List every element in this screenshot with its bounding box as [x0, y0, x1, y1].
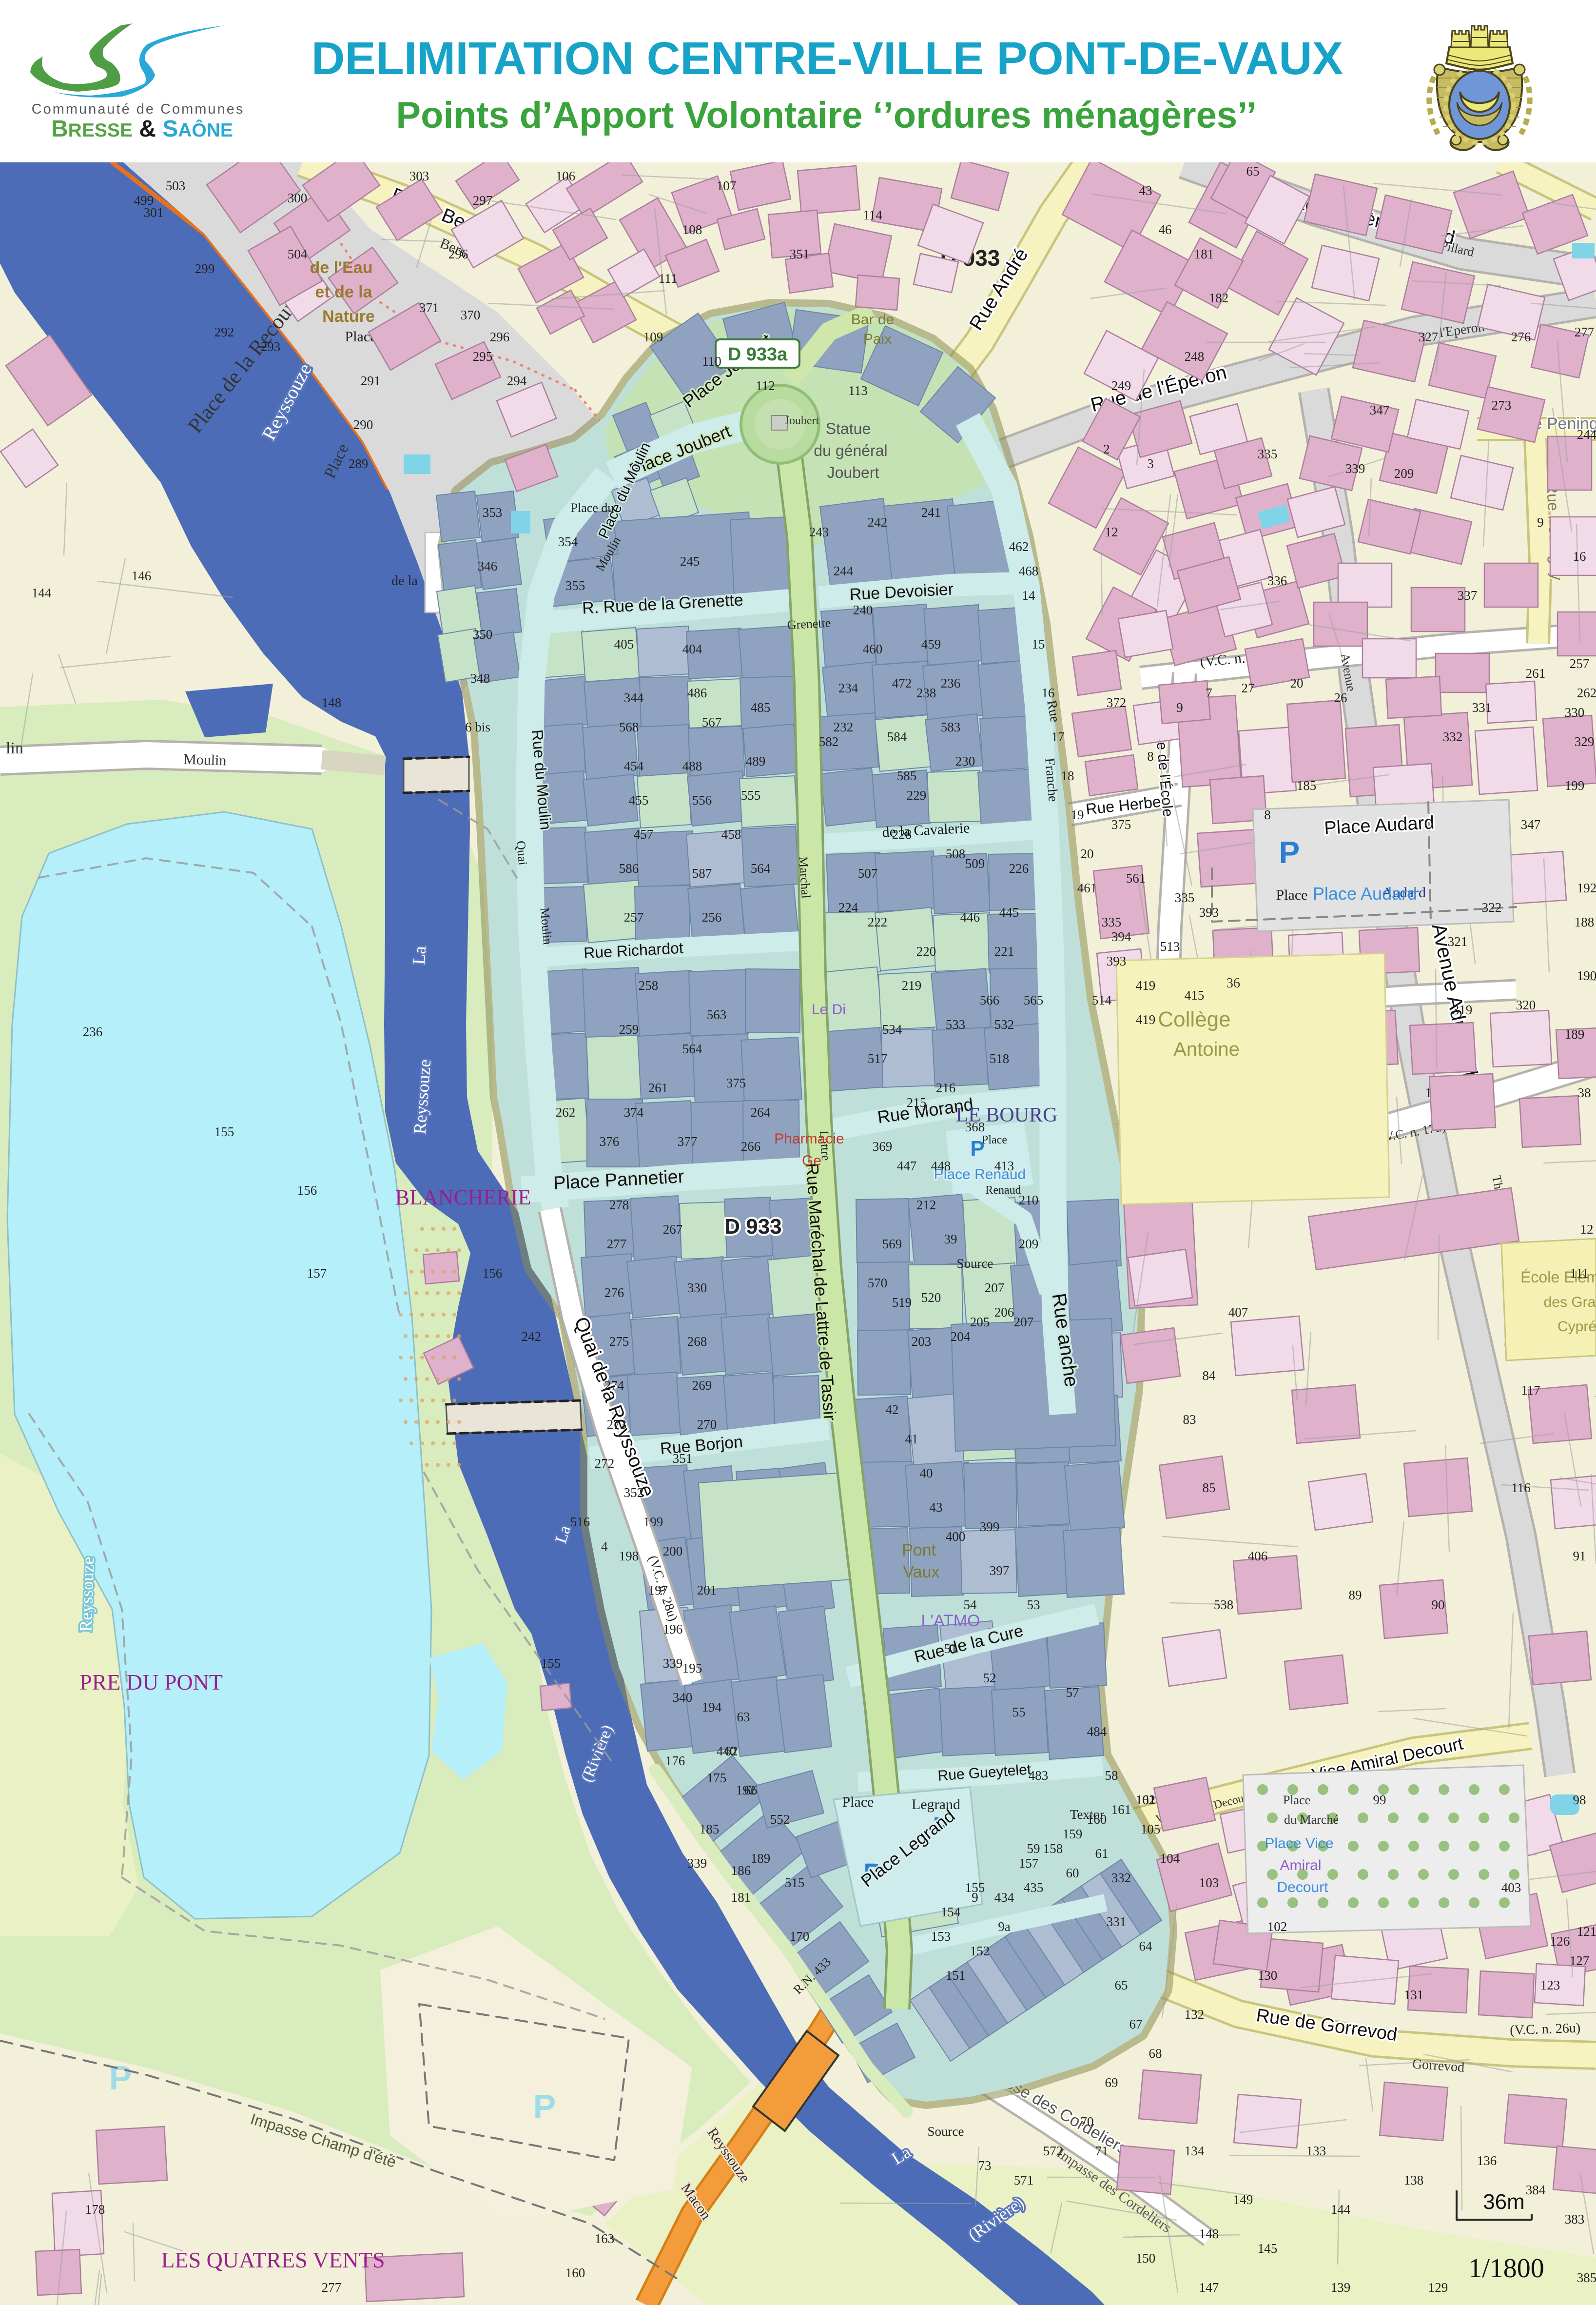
svg-text:397: 397: [990, 1563, 1010, 1578]
svg-text:104: 104: [1160, 1851, 1180, 1866]
svg-text:85: 85: [1203, 1480, 1216, 1495]
svg-text:587: 587: [692, 866, 712, 881]
svg-text:462: 462: [1009, 539, 1029, 554]
svg-text:454: 454: [624, 759, 644, 773]
svg-text:61: 61: [1095, 1846, 1109, 1861]
svg-text:348: 348: [470, 671, 490, 686]
svg-text:563: 563: [707, 1007, 727, 1022]
svg-text:106: 106: [556, 169, 576, 183]
svg-text:55: 55: [1012, 1705, 1026, 1719]
svg-text:221: 221: [994, 944, 1014, 959]
svg-text:513: 513: [1160, 939, 1180, 954]
svg-text:337: 337: [1458, 588, 1478, 603]
svg-text:123: 123: [1540, 1978, 1560, 1992]
svg-text:178: 178: [85, 2202, 105, 2217]
svg-text:413: 413: [994, 1159, 1014, 1173]
svg-text:du général: du général: [814, 442, 887, 459]
svg-text:564: 564: [682, 1042, 702, 1056]
svg-text:259: 259: [619, 1022, 639, 1037]
svg-text:170: 170: [790, 1929, 810, 1944]
svg-text:147: 147: [1199, 2280, 1219, 2295]
svg-text:42: 42: [886, 1402, 899, 1417]
svg-text:PRE DU PONT: PRE DU PONT: [79, 1670, 223, 1694]
svg-text:Nature: Nature: [322, 307, 375, 326]
svg-text:Place: Place: [842, 1794, 874, 1810]
svg-text:332: 332: [1111, 1871, 1131, 1885]
svg-text:54: 54: [964, 1597, 977, 1612]
svg-text:274: 274: [604, 1378, 624, 1393]
svg-text:406: 406: [1248, 1549, 1268, 1563]
svg-text:1/1800: 1/1800: [1468, 2253, 1544, 2284]
svg-text:347: 347: [1370, 403, 1390, 417]
svg-text:Collège: Collège: [1158, 1007, 1230, 1031]
svg-text:585: 585: [897, 768, 917, 783]
svg-text:Pont: Pont: [902, 1541, 936, 1559]
svg-text:468: 468: [1019, 564, 1039, 578]
svg-text:51: 51: [944, 1641, 957, 1656]
svg-text:520: 520: [921, 1290, 941, 1305]
svg-text:190: 190: [1577, 968, 1596, 983]
svg-text:157: 157: [307, 1266, 327, 1281]
svg-text:419: 419: [1136, 978, 1156, 993]
svg-text:19: 19: [1071, 808, 1084, 822]
svg-text:102: 102: [1267, 1919, 1287, 1934]
svg-text:113: 113: [848, 383, 868, 398]
svg-text:103: 103: [1199, 1875, 1219, 1890]
svg-text:64: 64: [1139, 1939, 1153, 1953]
svg-text:319: 319: [1453, 1003, 1473, 1017]
svg-text:352: 352: [624, 1485, 644, 1500]
svg-text:569: 569: [882, 1237, 902, 1251]
svg-text:572: 572: [1043, 2144, 1063, 2158]
svg-text:394: 394: [1111, 929, 1131, 944]
svg-text:139: 139: [1331, 2280, 1351, 2295]
svg-text:533: 533: [946, 1017, 966, 1032]
svg-text:3: 3: [1147, 456, 1154, 471]
svg-text:Bar de: Bar de: [851, 312, 894, 328]
svg-text:Points d’Apport Volontaire ‘’o: Points d’Apport Volontaire ‘’ordures mén…: [396, 95, 1256, 136]
svg-text:144: 144: [32, 586, 52, 600]
svg-text:393: 393: [1199, 905, 1219, 920]
svg-text:236: 236: [83, 1024, 103, 1039]
svg-text:197: 197: [648, 1583, 668, 1597]
svg-text:LES QUATRES VENTS: LES QUATRES VENTS: [161, 2247, 385, 2272]
svg-text:508: 508: [946, 847, 966, 861]
svg-text:276: 276: [1511, 330, 1531, 344]
svg-text:461: 461: [1077, 881, 1097, 895]
svg-text:90: 90: [1432, 1597, 1445, 1612]
svg-text:109: 109: [643, 330, 663, 344]
svg-text:60: 60: [1066, 1866, 1079, 1880]
svg-text:370: 370: [461, 308, 481, 322]
svg-text:355: 355: [565, 578, 585, 593]
svg-text:377: 377: [678, 1134, 698, 1149]
svg-text:503: 503: [166, 178, 186, 193]
svg-text:372: 372: [1107, 695, 1127, 710]
svg-text:228: 228: [892, 827, 912, 842]
svg-text:244: 244: [1577, 427, 1596, 442]
svg-text:196: 196: [663, 1622, 683, 1636]
svg-text:330: 330: [687, 1281, 707, 1295]
svg-text:Place: Place: [1276, 887, 1308, 903]
svg-text:242: 242: [868, 515, 888, 530]
svg-text:Place: Place: [982, 1134, 1007, 1146]
svg-text:375: 375: [726, 1076, 746, 1090]
svg-text:9a: 9a: [998, 1919, 1011, 1934]
svg-text:243: 243: [809, 525, 829, 539]
svg-text:445: 445: [999, 905, 1019, 920]
svg-text:400: 400: [946, 1529, 966, 1544]
svg-text:384: 384: [1526, 2183, 1546, 2197]
svg-text:224: 224: [838, 900, 858, 915]
svg-text:570: 570: [868, 1276, 888, 1290]
svg-text:148: 148: [1199, 2226, 1219, 2241]
svg-text:457: 457: [634, 827, 654, 842]
svg-text:7: 7: [1206, 686, 1212, 700]
svg-text:155: 155: [214, 1124, 234, 1139]
svg-text:267: 267: [663, 1222, 683, 1237]
svg-text:68: 68: [1149, 2046, 1162, 2061]
svg-text:12: 12: [1105, 525, 1118, 539]
svg-text:73: 73: [978, 2158, 992, 2173]
svg-text:207: 207: [1014, 1315, 1034, 1329]
svg-text:299: 299: [195, 261, 215, 276]
svg-text:582: 582: [819, 734, 839, 749]
svg-text:201: 201: [697, 1583, 717, 1597]
svg-text:P: P: [533, 2088, 556, 2126]
svg-text:52: 52: [983, 1671, 996, 1685]
svg-text:277: 277: [607, 1237, 627, 1251]
svg-text:38: 38: [1578, 1085, 1591, 1100]
svg-text:129: 129: [1428, 2280, 1448, 2295]
svg-text:P: P: [109, 2059, 132, 2097]
svg-text:20: 20: [1081, 847, 1094, 861]
svg-text:203: 203: [912, 1334, 932, 1349]
svg-text:Paix: Paix: [863, 331, 892, 347]
svg-text:532: 532: [994, 1017, 1014, 1032]
svg-text:483: 483: [1029, 1768, 1049, 1783]
svg-text:175: 175: [707, 1771, 727, 1785]
svg-text:210: 210: [1019, 1193, 1039, 1207]
svg-text:4: 4: [601, 1539, 608, 1554]
svg-text:18: 18: [1061, 768, 1074, 783]
svg-text:584: 584: [887, 729, 907, 744]
svg-text:517: 517: [868, 1051, 888, 1066]
svg-text:266: 266: [741, 1139, 761, 1154]
svg-text:186: 186: [731, 1863, 751, 1878]
svg-text:91: 91: [1573, 1549, 1586, 1563]
svg-text:43: 43: [1139, 183, 1152, 198]
svg-text:236: 236: [941, 676, 961, 690]
svg-text:150: 150: [1136, 2251, 1156, 2266]
svg-text:459: 459: [921, 637, 941, 651]
svg-text:Le Di: Le Di: [812, 1002, 846, 1018]
svg-text:257: 257: [1570, 656, 1590, 671]
svg-text:296: 296: [490, 330, 510, 344]
svg-text:99: 99: [1373, 1793, 1386, 1807]
svg-text:516: 516: [570, 1515, 590, 1529]
svg-text:157: 157: [1019, 1856, 1039, 1871]
svg-text:371: 371: [419, 300, 439, 315]
svg-text:et de la: et de la: [315, 283, 372, 301]
svg-text:12: 12: [1580, 1222, 1594, 1237]
svg-text:455: 455: [629, 793, 649, 808]
svg-text:105: 105: [1141, 1822, 1161, 1836]
svg-text:256: 256: [702, 910, 722, 925]
svg-text:Grenette: Grenette: [787, 616, 831, 632]
svg-text:181: 181: [731, 1890, 751, 1905]
svg-text:de l'Eau: de l'Eau: [310, 258, 372, 277]
svg-text:519: 519: [892, 1295, 912, 1310]
svg-text:374: 374: [624, 1105, 644, 1120]
svg-text:57: 57: [1066, 1685, 1079, 1700]
svg-text:240: 240: [853, 603, 873, 617]
svg-text:133: 133: [1306, 2144, 1326, 2158]
svg-text:292: 292: [214, 325, 234, 339]
svg-text:273: 273: [607, 1417, 627, 1432]
svg-text:de la: de la: [391, 573, 418, 589]
svg-text:8: 8: [1264, 808, 1271, 822]
svg-text:322: 322: [1482, 900, 1502, 915]
svg-text:16: 16: [1042, 686, 1055, 700]
svg-text:403: 403: [1501, 1880, 1521, 1895]
svg-text:291: 291: [361, 374, 381, 388]
svg-text:507: 507: [858, 866, 878, 881]
svg-text:Vaux: Vaux: [903, 1563, 940, 1581]
svg-text:156: 156: [297, 1183, 317, 1198]
svg-text:335: 335: [1175, 890, 1195, 905]
svg-text:116: 116: [1511, 1480, 1531, 1495]
svg-text:Renaud: Renaud: [985, 1184, 1021, 1197]
svg-text:41: 41: [905, 1432, 918, 1446]
svg-text:383: 383: [1565, 2212, 1585, 2226]
svg-text:270: 270: [697, 1417, 717, 1432]
svg-text:275: 275: [609, 1334, 629, 1349]
svg-text:163: 163: [595, 2231, 615, 2246]
svg-text:534: 534: [882, 1022, 902, 1037]
svg-text:301: 301: [144, 205, 164, 220]
svg-text:117: 117: [1521, 1383, 1540, 1398]
svg-text:199: 199: [643, 1515, 663, 1529]
svg-text:Communauté de Communes: Communauté de Communes: [32, 101, 245, 117]
svg-text:552: 552: [770, 1812, 790, 1827]
svg-text:277: 277: [1575, 325, 1595, 339]
svg-text:209: 209: [1019, 1237, 1039, 1251]
svg-text:399: 399: [980, 1519, 1000, 1534]
svg-text:262: 262: [556, 1105, 576, 1120]
svg-text:Place: Place: [1283, 1793, 1310, 1807]
svg-text:162: 162: [1136, 1793, 1156, 1807]
svg-text:332: 332: [1443, 729, 1463, 744]
svg-text:130: 130: [1258, 1968, 1278, 1983]
svg-text:D 933a: D 933a: [728, 344, 788, 365]
svg-text:199: 199: [1565, 778, 1585, 793]
svg-text:36m: 36m: [1483, 2190, 1525, 2214]
svg-text:98: 98: [1573, 1793, 1586, 1807]
svg-text:17: 17: [1051, 729, 1065, 744]
svg-text:321: 321: [1448, 934, 1468, 949]
svg-text:189: 189: [1565, 1027, 1585, 1042]
svg-text:350: 350: [473, 627, 493, 642]
svg-text:194: 194: [702, 1700, 722, 1714]
svg-text:185: 185: [700, 1822, 720, 1836]
svg-text:368: 368: [965, 1120, 985, 1134]
svg-text:155: 155: [541, 1656, 561, 1671]
svg-text:Place du: Place du: [571, 501, 614, 515]
svg-text:des Gra: des Gra: [1544, 1294, 1596, 1310]
svg-text:460: 460: [863, 642, 883, 656]
svg-text:111: 111: [659, 271, 678, 286]
svg-text:262: 262: [1577, 686, 1596, 700]
svg-text:Moulin: Moulin: [183, 751, 227, 768]
svg-text:327: 327: [1419, 330, 1439, 344]
svg-text:8: 8: [1147, 749, 1154, 764]
svg-text:485: 485: [751, 700, 771, 715]
svg-text:216: 216: [936, 1081, 956, 1095]
svg-text:489: 489: [746, 754, 766, 768]
svg-text:127: 127: [1570, 1953, 1590, 1968]
svg-text:185: 185: [1297, 778, 1317, 793]
svg-text:204: 204: [951, 1329, 971, 1344]
svg-text:583: 583: [941, 720, 961, 734]
svg-text:376: 376: [600, 1134, 620, 1149]
svg-text:447: 447: [897, 1159, 917, 1173]
svg-text:146: 146: [132, 569, 152, 583]
svg-text:555: 555: [741, 788, 761, 803]
svg-text:568: 568: [619, 720, 639, 734]
svg-text:404: 404: [682, 642, 702, 656]
svg-text:Decourt: Decourt: [1277, 1879, 1328, 1895]
svg-text:340: 340: [673, 1690, 693, 1705]
svg-text:195: 195: [682, 1661, 702, 1675]
svg-text:561: 561: [1126, 871, 1146, 886]
svg-text:586: 586: [619, 861, 639, 876]
svg-text:353: 353: [483, 505, 503, 520]
svg-text:393: 393: [1107, 954, 1127, 968]
svg-text:230: 230: [955, 754, 975, 768]
svg-text:Pharmacie: Pharmacie: [774, 1131, 844, 1147]
svg-text:Place Vice: Place Vice: [1265, 1835, 1333, 1852]
svg-text:144: 144: [1331, 2202, 1351, 2217]
svg-text:212: 212: [916, 1198, 936, 1212]
svg-text:278: 278: [609, 1198, 629, 1212]
svg-text:207: 207: [985, 1281, 1005, 1295]
svg-text:155: 155: [965, 1880, 985, 1895]
svg-text:448: 448: [931, 1159, 951, 1173]
svg-text:Marchal: Marchal: [796, 856, 813, 899]
svg-text:273: 273: [1492, 398, 1512, 413]
svg-text:108: 108: [682, 222, 702, 237]
svg-text:331: 331: [1107, 1914, 1127, 1929]
svg-text:339: 339: [663, 1656, 683, 1671]
svg-text:156: 156: [483, 1266, 503, 1281]
svg-text:Legrand: Legrand: [912, 1796, 960, 1812]
svg-text:La: La: [409, 946, 430, 965]
svg-text:272: 272: [595, 1456, 615, 1471]
svg-text:15: 15: [1032, 637, 1045, 651]
svg-text:132: 132: [1185, 2007, 1205, 2022]
svg-text:Statue: Statue: [826, 420, 871, 437]
svg-text:181: 181: [1194, 247, 1214, 261]
svg-text:D 933: D 933: [724, 1215, 781, 1239]
svg-text:P: P: [1279, 835, 1300, 870]
svg-text:Ge: Ge: [802, 1153, 821, 1169]
svg-text:111: 111: [1570, 1266, 1589, 1281]
svg-text:226: 226: [1009, 861, 1029, 876]
svg-text:20: 20: [1290, 676, 1304, 690]
svg-text:58: 58: [1105, 1768, 1118, 1783]
svg-text:514: 514: [1092, 993, 1112, 1007]
svg-text:244: 244: [834, 564, 854, 578]
svg-text:145: 145: [1258, 2241, 1278, 2256]
svg-text:36: 36: [1226, 976, 1240, 991]
svg-text:241: 241: [921, 505, 941, 520]
svg-text:329: 329: [1575, 734, 1595, 749]
svg-text:293: 293: [261, 339, 281, 354]
svg-text:BLANCHERIE: BLANCHERIE: [395, 1185, 531, 1209]
svg-text:434: 434: [994, 1890, 1014, 1905]
svg-text:488: 488: [682, 759, 702, 773]
svg-text:564: 564: [751, 861, 771, 876]
svg-text:515: 515: [785, 1875, 805, 1890]
svg-text:385: 385: [1577, 2270, 1596, 2285]
svg-text:264: 264: [751, 1105, 771, 1120]
svg-text:458: 458: [721, 827, 741, 842]
svg-text:BRESSE & SAÔNE: BRESSE & SAÔNE: [51, 116, 233, 142]
svg-text:320: 320: [1516, 998, 1536, 1012]
svg-text:261: 261: [648, 1081, 668, 1095]
svg-text:70: 70: [1081, 2114, 1094, 2129]
svg-text:151: 151: [946, 1968, 966, 1983]
svg-text:206: 206: [994, 1305, 1014, 1320]
svg-text:369: 369: [873, 1139, 893, 1154]
svg-text:Source: Source: [957, 1256, 993, 1271]
svg-text:415: 415: [1185, 988, 1205, 1003]
svg-text:209: 209: [1394, 466, 1414, 481]
svg-text:67: 67: [1129, 2017, 1143, 2031]
svg-text:121: 121: [1577, 1924, 1596, 1939]
svg-text:268: 268: [687, 1334, 707, 1349]
svg-text:215: 215: [907, 1095, 927, 1110]
svg-text:160: 160: [565, 2266, 585, 2280]
svg-text:149: 149: [1233, 2192, 1253, 2207]
svg-text:159: 159: [1063, 1827, 1083, 1841]
svg-text:504: 504: [288, 247, 308, 261]
svg-text:89: 89: [1349, 1588, 1362, 1602]
svg-text:336: 336: [1267, 573, 1287, 588]
svg-text:63: 63: [737, 1710, 750, 1724]
svg-text:556: 556: [692, 793, 712, 808]
svg-text:566: 566: [980, 993, 1000, 1007]
svg-text:296: 296: [448, 247, 468, 261]
svg-text:277: 277: [322, 2280, 342, 2295]
svg-text:538: 538: [1214, 1597, 1234, 1612]
svg-text:110: 110: [702, 354, 721, 369]
svg-text:192: 192: [1577, 881, 1596, 895]
svg-text:229: 229: [907, 788, 927, 803]
svg-text:219: 219: [902, 978, 922, 993]
svg-text:14: 14: [1022, 588, 1036, 603]
svg-text:269: 269: [692, 1378, 712, 1393]
svg-text:27: 27: [1242, 681, 1255, 695]
svg-text:518: 518: [990, 1051, 1010, 1066]
svg-text:261: 261: [1526, 666, 1546, 681]
svg-text:276: 276: [604, 1285, 624, 1300]
svg-text:Place Audard: Place Audard: [1313, 884, 1417, 904]
svg-text:234: 234: [838, 681, 858, 695]
svg-text:Cypré: Cypré: [1557, 1319, 1596, 1335]
svg-text:331: 331: [1472, 700, 1492, 715]
